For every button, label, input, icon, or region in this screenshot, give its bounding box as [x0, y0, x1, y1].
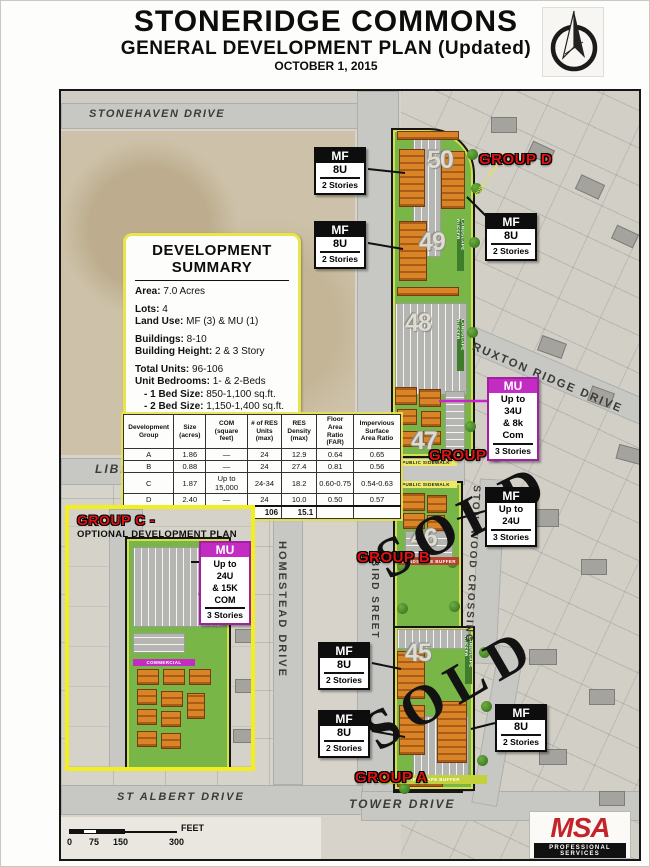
parking-lot [445, 391, 465, 455]
cell: 1.86 [174, 449, 206, 461]
cell: 0.50 [317, 494, 354, 507]
unit-callout-mf: MF 8U 2 Stories [314, 147, 366, 195]
unit-callout-mf: MF 8U 2 Stories [318, 710, 370, 758]
landscape-buffer-label: LANDSCAPE BUFFER [457, 319, 464, 371]
scale-bar: 0 75 150 300 FEET [69, 821, 229, 853]
cell: 12.9 [282, 449, 317, 461]
table-row: C1.87Up to 15,00024-3418.20.60-0.750.54-… [124, 473, 401, 494]
unit-stories-label: 3 Stories [489, 445, 537, 459]
unit-type-label: MF [487, 489, 535, 503]
summary-value: 1- & 2-Beds [213, 376, 266, 387]
commercial-label: COMMERCIAL [133, 659, 195, 666]
unit-count-label: Up to 24U & 15K COM [205, 557, 245, 609]
scale-segment [97, 829, 125, 834]
lot-number: 49 [419, 228, 445, 257]
lot-number: 50 [427, 146, 453, 175]
column-header: Development Group [124, 415, 174, 449]
summary-label: - 2 Bed Size: [144, 401, 203, 412]
summary-label: Lots: [135, 304, 159, 315]
inset-building [161, 711, 181, 727]
inset-parking-lot [133, 633, 185, 653]
unit-stories-label: 3 Stories [201, 609, 249, 623]
unit-type-label: MF [316, 149, 364, 163]
house-footprint [581, 559, 607, 575]
tree [469, 237, 480, 248]
house-footprint [491, 117, 517, 133]
column-header: COM (square feet) [206, 415, 248, 449]
house-footprint [589, 689, 615, 705]
lot-number: 48 [405, 309, 431, 338]
table-row: B0.88—2427.40.810.56 [124, 461, 401, 473]
building [399, 149, 425, 207]
scale-unit-label: FEET [181, 823, 204, 833]
table-header-row: Development Group Size (acres) COM (squa… [124, 415, 401, 449]
cell: 1.87 [174, 473, 206, 494]
street-label-stonehaven: STONEHAVEN DRIVE [89, 108, 225, 120]
scale-tick: 300 [169, 837, 184, 847]
house-footprint [235, 679, 255, 693]
unit-count-label: Up to 34U & 8k Com [493, 393, 533, 445]
summary-label: Total Units: [135, 364, 189, 375]
garage-row [397, 131, 459, 140]
development-group-table: Development Group Size (acres) COM (squa… [123, 414, 401, 519]
inset-building [189, 669, 211, 685]
unit-callout-mf: MF 8U 2 Stories [495, 704, 547, 752]
msa-logo-tagline: PROFESSIONAL SERVICES [534, 843, 626, 858]
scale-tick: 150 [113, 837, 128, 847]
inset-building [161, 691, 183, 707]
unit-callout-mf: MF 8U 2 Stories [485, 213, 537, 261]
tree [477, 755, 488, 766]
building [419, 389, 441, 407]
column-header: Size (acres) [174, 415, 206, 449]
tree [465, 421, 476, 432]
summary-label: Unit Bedrooms: [135, 376, 210, 387]
unit-count-label: 8U [501, 720, 541, 736]
group-c-optional-plan-inset: COMMERCIAL MU Up to 24U & 15K COM 3 Stor… [65, 505, 255, 771]
summary-value: 4 [162, 304, 168, 315]
cell: 18.2 [282, 473, 317, 494]
cell: — [206, 449, 248, 461]
house-footprint [233, 729, 255, 743]
unit-count-label: 8U [324, 726, 364, 742]
building [421, 411, 441, 427]
unit-type-label: MF [487, 215, 535, 229]
inset-group-title: GROUP C - [77, 512, 155, 528]
group-b-label: GROUP B [357, 549, 430, 566]
total-cell: 15.1 [282, 506, 317, 519]
inset-building [137, 689, 157, 705]
cell: 0.81 [317, 461, 354, 473]
column-header: Floor Area Ratio (FAR) [317, 415, 354, 449]
public-sidewalk-label: PUBLIC SIDEWALK [395, 481, 457, 488]
unit-stories-label: 2 Stories [316, 253, 364, 267]
street-label-tower: TOWER DRIVE [349, 797, 455, 811]
cell: B [124, 461, 174, 473]
column-header: Impervious Surface Area Ratio [354, 415, 401, 449]
house-footprint [599, 791, 625, 806]
lot-number: 45 [405, 639, 431, 668]
cell: 10.0 [282, 494, 317, 507]
unit-type-label: MF [497, 706, 545, 720]
column-header: RES Density (max) [282, 415, 317, 449]
scale-segment [69, 829, 83, 834]
inset-building [137, 669, 159, 685]
unit-callout-mf: MF 8U 2 Stories [314, 221, 366, 269]
cell: 0.65 [354, 449, 401, 461]
summary-value: MF (3) & MU (1) [186, 316, 258, 327]
tree [449, 601, 460, 612]
cell: 0.60-0.75 [317, 473, 354, 494]
unit-callout-mu: MU Up to 34U & 8k Com 3 Stories [487, 377, 539, 461]
summary-label: Area: [135, 286, 161, 297]
tree [467, 149, 478, 160]
tree [397, 603, 408, 614]
unit-count-label: 8U [320, 163, 360, 179]
msa-logo: MSA PROFESSIONAL SERVICES [529, 811, 631, 859]
garage-row [397, 287, 459, 296]
summary-value: 8-10 [187, 334, 207, 345]
cell: 0.88 [174, 461, 206, 473]
unit-stories-label: 3 Stories [487, 531, 535, 545]
north-arrow-icon [542, 7, 604, 77]
summary-heading: DEVELOPMENT SUMMARY [135, 242, 289, 276]
unit-type-label: MU [489, 379, 537, 393]
table-row: A1.86—2412.90.640.65 [124, 449, 401, 461]
inset-building [187, 693, 205, 719]
cell: 0.57 [354, 494, 401, 507]
unit-callout-mu: MU Up to 24U & 15K COM 3 Stories [199, 541, 251, 625]
street-label-homestead: HOMESTEAD DRIVE [276, 541, 288, 785]
summary-label: Building Height: [135, 346, 212, 357]
cell: Up to 15,000 [206, 473, 248, 494]
scale-segment [83, 829, 97, 834]
summary-label: - 1 Bed Size: [144, 389, 203, 400]
column-header: # of RES Units (max) [247, 415, 281, 449]
building [395, 387, 417, 405]
unit-stories-label: 2 Stories [320, 742, 368, 756]
summary-value: 850-1,100 sq.ft. [206, 389, 276, 400]
group-d-label: GROUP D [479, 151, 552, 168]
cell: 24 [247, 449, 281, 461]
unit-type-label: MF [320, 712, 368, 726]
street-label-st-albert: ST ALBERT DRIVE [117, 791, 245, 803]
landscape-buffer-label: LANDSCAPE BUFFER [457, 219, 464, 271]
msa-logo-text: MSA [530, 814, 630, 842]
inset-building [161, 733, 181, 749]
house-footprint [235, 629, 255, 643]
development-summary-box: DEVELOPMENT SUMMARY Area: 7.0 Acres Lots… [123, 233, 301, 425]
unit-type-label: MF [316, 223, 364, 237]
unit-count-label: 8U [320, 237, 360, 253]
unit-callout-mf: MF Up to 24U 3 Stories [485, 487, 537, 547]
site-plan-map: LANDSCAPE BUFFER LANDSCAPE BUFFER LANDSC… [59, 89, 641, 861]
cell: 0.64 [317, 449, 354, 461]
tree [467, 327, 478, 338]
cell: A [124, 449, 174, 461]
unit-count-label: 8U [324, 658, 364, 674]
divider [135, 280, 289, 281]
cell: 0.56 [354, 461, 401, 473]
inset-subtitle: OPTIONAL DEVELOPMENT PLAN [77, 529, 237, 540]
aerial-texture-top-strip [61, 91, 398, 103]
unit-type-label: MF [320, 644, 368, 658]
scale-segment [125, 831, 177, 833]
unit-stories-label: 2 Stories [487, 245, 535, 259]
unit-type-label: MU [201, 543, 249, 557]
scale-tick: 0 [67, 837, 72, 847]
unit-callout-mf: MF 8U 2 Stories [318, 642, 370, 690]
unit-count-label: 8U [491, 229, 531, 245]
cell: C [124, 473, 174, 494]
scale-tick: 75 [89, 837, 99, 847]
summary-value: 7.0 Acres [163, 286, 205, 297]
summary-value: 1,150-1,400 sq.ft. [206, 401, 284, 412]
unit-stories-label: 2 Stories [316, 179, 364, 193]
plan-sheet: STONERIDGE COMMONS GENERAL DEVELOPMENT P… [0, 0, 650, 867]
cell: 27.4 [282, 461, 317, 473]
inset-building [137, 731, 157, 747]
total-cell [354, 506, 401, 519]
unit-stories-label: 2 Stories [497, 736, 545, 750]
cell: 24 [247, 461, 281, 473]
summary-value: 96-106 [192, 364, 223, 375]
summary-label: Land Use: [135, 316, 183, 327]
cell: 0.54-0.63 [354, 473, 401, 494]
group-a-label: GROUP A [355, 769, 428, 786]
summary-label: Buildings: [135, 334, 184, 345]
total-cell [317, 506, 354, 519]
cell: 24-34 [247, 473, 281, 494]
cell: — [206, 461, 248, 473]
inset-building [137, 709, 157, 725]
unit-count-label: Up to 24U [491, 503, 531, 531]
unit-stories-label: 2 Stories [320, 674, 368, 688]
inset-building [163, 669, 185, 685]
summary-value: 2 & 3 Story [215, 346, 264, 357]
